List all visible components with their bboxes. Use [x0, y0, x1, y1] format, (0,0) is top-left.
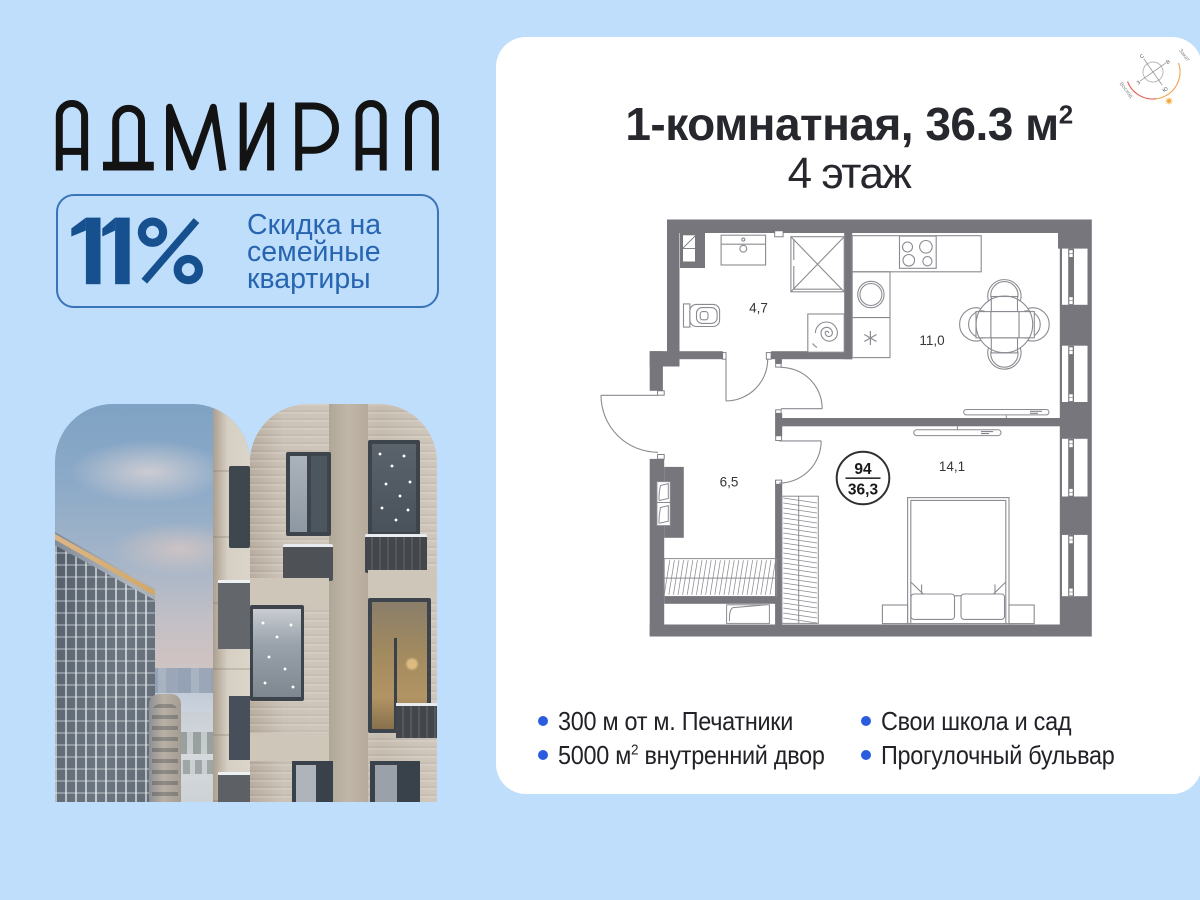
svg-text:С: С: [1139, 53, 1146, 60]
svg-text:Ю: Ю: [1162, 86, 1170, 94]
svg-text:6,5: 6,5: [720, 474, 739, 489]
svg-text:36,3: 36,3: [848, 482, 879, 499]
svg-text:4,7: 4,7: [749, 301, 768, 316]
svg-text:94: 94: [854, 461, 872, 478]
svg-text:11,0: 11,0: [919, 333, 944, 348]
svg-text:Восход: Восход: [1118, 81, 1134, 100]
svg-text:14,1: 14,1: [939, 459, 965, 474]
svg-text:В: В: [1165, 59, 1172, 66]
svg-text:Закат: Закат: [1177, 48, 1191, 63]
